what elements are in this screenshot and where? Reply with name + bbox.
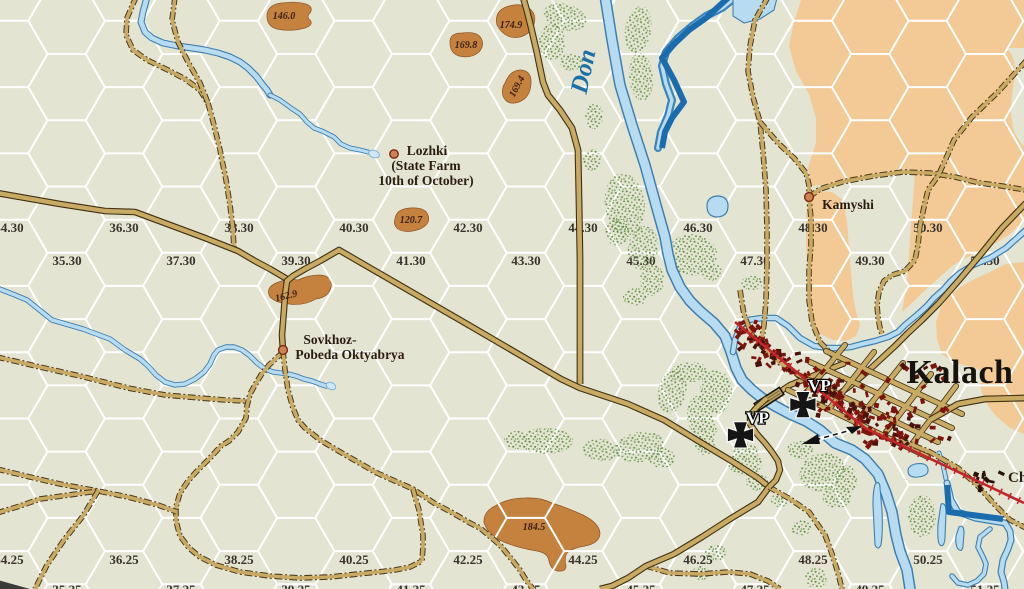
svg-text:Ch: Ch — [1008, 470, 1024, 486]
svg-text:42.25: 42.25 — [453, 552, 483, 567]
svg-text:37.25: 37.25 — [166, 582, 196, 589]
svg-text:36.25: 36.25 — [109, 552, 139, 567]
svg-text:184.5: 184.5 — [523, 522, 546, 533]
svg-text:40.25: 40.25 — [339, 552, 369, 567]
svg-text:34.25: 34.25 — [0, 552, 24, 567]
svg-text:Kalach: Kalach — [907, 354, 1014, 391]
svg-text:Sovkhoz-: Sovkhoz- — [303, 332, 356, 347]
svg-text:48.25: 48.25 — [798, 552, 828, 567]
svg-text:Lozhki: Lozhki — [407, 143, 448, 158]
svg-text:(State Farm: (State Farm — [391, 158, 461, 173]
svg-text:35.25: 35.25 — [52, 582, 82, 589]
svg-text:40.30: 40.30 — [339, 220, 368, 235]
svg-text:146.0: 146.0 — [273, 11, 296, 22]
svg-text:120.7: 120.7 — [400, 215, 424, 226]
svg-text:169.8: 169.8 — [455, 40, 478, 51]
svg-text:50.25: 50.25 — [913, 552, 943, 567]
svg-text:42.30: 42.30 — [453, 220, 482, 235]
svg-text:41.30: 41.30 — [396, 253, 425, 268]
svg-text:39.25: 39.25 — [281, 582, 311, 589]
svg-text:36.30: 36.30 — [109, 220, 138, 235]
svg-text:174.9: 174.9 — [500, 20, 523, 31]
svg-text:VP: VP — [746, 409, 769, 428]
svg-text:49.25: 49.25 — [855, 582, 885, 589]
svg-text:Kamyshi: Kamyshi — [822, 197, 874, 212]
svg-text:35.30: 35.30 — [52, 253, 81, 268]
svg-text:44.25: 44.25 — [568, 552, 598, 567]
svg-text:38.30: 38.30 — [224, 220, 253, 235]
svg-text:44.30: 44.30 — [568, 220, 597, 235]
svg-text:10th of October): 10th of October) — [378, 173, 473, 188]
svg-text:45.25: 45.25 — [626, 582, 656, 589]
svg-text:46.30: 46.30 — [683, 220, 712, 235]
svg-text:38.25: 38.25 — [224, 552, 254, 567]
svg-text:Pobeda Oktyabrya: Pobeda Oktyabrya — [295, 347, 404, 362]
svg-text:VP: VP — [808, 376, 831, 395]
svg-text:41.25: 41.25 — [396, 582, 426, 589]
svg-text:34.30: 34.30 — [0, 220, 24, 235]
svg-text:49.30: 49.30 — [855, 253, 884, 268]
svg-text:43.30: 43.30 — [511, 253, 540, 268]
svg-text:37.30: 37.30 — [166, 253, 195, 268]
